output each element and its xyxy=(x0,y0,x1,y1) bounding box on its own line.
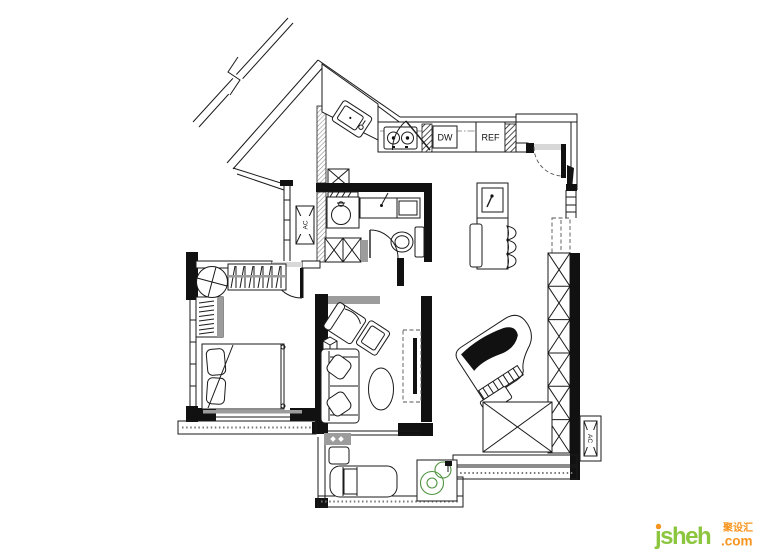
floor-plan-page: DW REF xyxy=(0,0,780,551)
refrigerator-label: REF xyxy=(482,133,501,143)
dining-area xyxy=(470,183,516,269)
watermark-chinese: 聚设汇 xyxy=(722,521,753,534)
ac-left-label: AC xyxy=(303,220,310,229)
grand-piano-icon xyxy=(453,310,550,401)
dresser xyxy=(196,297,223,337)
pillow xyxy=(206,348,226,375)
desk xyxy=(483,402,552,452)
watermark-tld: .com xyxy=(721,534,753,549)
bathroom-vanity-sink xyxy=(327,197,359,228)
lounge-chair xyxy=(330,466,397,497)
bedroom-west-window xyxy=(190,300,196,406)
wall-pillar xyxy=(505,124,516,152)
bed xyxy=(202,344,285,409)
dishwasher: DW xyxy=(433,126,457,148)
piano-area xyxy=(453,310,552,452)
west-window-upper xyxy=(284,185,290,261)
entry xyxy=(516,114,577,190)
tv-icon xyxy=(413,338,417,394)
ac-unit-left: AC xyxy=(296,206,314,244)
kitchen: DW REF xyxy=(317,60,516,187)
bathroom-cabinet xyxy=(325,238,368,262)
watermark-logo: jsheh 聚设汇 .com xyxy=(654,521,753,550)
toilet-icon xyxy=(391,227,424,257)
tv-wall xyxy=(403,330,421,402)
entry-door-leaf xyxy=(561,144,566,178)
ac-unit-right: AC xyxy=(580,416,601,461)
watermark-brand: jsheh xyxy=(654,523,711,550)
living-room xyxy=(321,296,421,423)
exterior-corridor xyxy=(193,18,324,190)
refrigerator: REF xyxy=(476,122,505,152)
corner-table-icon xyxy=(193,263,231,301)
console-shelf xyxy=(328,296,380,304)
entry-door-swing xyxy=(534,147,563,176)
planter-plants xyxy=(417,460,457,501)
wall-pillar xyxy=(422,124,432,152)
east-wall xyxy=(548,184,580,463)
coffee-table xyxy=(369,368,394,410)
stove-icon xyxy=(384,127,417,149)
watermark-j-dot-icon xyxy=(656,524,661,529)
dishwasher-label: DW xyxy=(438,133,453,143)
dining-bench xyxy=(470,224,482,267)
pillow xyxy=(206,377,226,404)
wardrobe xyxy=(228,264,286,290)
sofa xyxy=(321,349,359,423)
curtain-rail xyxy=(203,410,302,414)
bathroom-counter xyxy=(360,193,420,218)
bathroom-door xyxy=(370,230,398,258)
floor-plan-drawing: DW REF xyxy=(0,0,780,551)
bathroom-mirror xyxy=(328,192,358,197)
kitchen-west-wall xyxy=(317,106,326,183)
sideboard-decor xyxy=(477,183,508,218)
balcony-side-table xyxy=(329,447,349,464)
ac-right-label: AC xyxy=(586,434,593,443)
bathroom xyxy=(317,192,424,262)
balcony-threshold xyxy=(324,433,351,445)
